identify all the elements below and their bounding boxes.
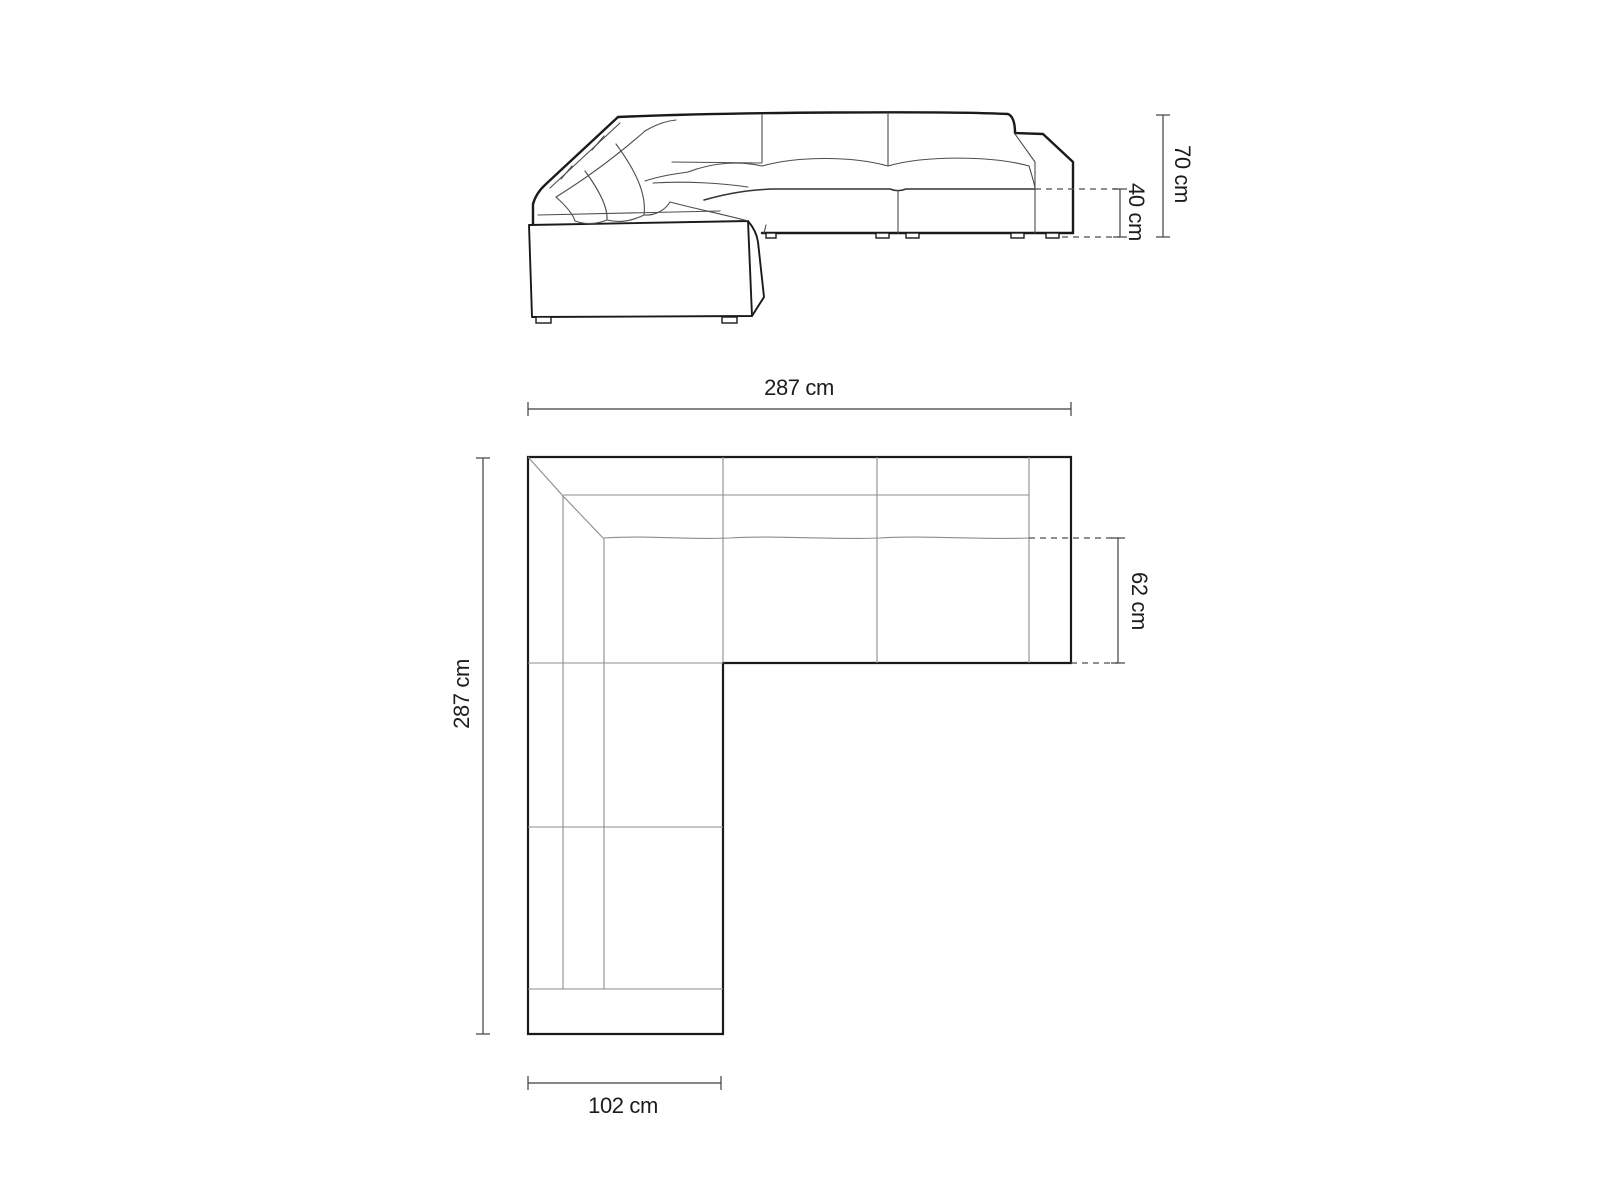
sofa-foot xyxy=(1046,233,1059,238)
sofa-foot xyxy=(1011,233,1024,238)
dimension-label-total-width: 287 cm xyxy=(719,375,879,401)
dimension-label-seat-height: 40 cm xyxy=(1123,132,1149,292)
dimension-label-seat-depth: 62 cm xyxy=(1126,521,1152,681)
sofa-foot xyxy=(536,317,551,323)
sofa-foot xyxy=(722,317,737,323)
sofa-elevation-drawing xyxy=(529,112,1073,323)
plan-dimension-annotations xyxy=(476,402,1125,1090)
sofa-foot xyxy=(906,233,919,238)
dimension-label-chaise-width: 102 cm xyxy=(543,1093,703,1119)
sofa-plan-drawing xyxy=(528,457,1071,1034)
sofa-line-art xyxy=(0,0,1600,1200)
elevation-dimension-annotations xyxy=(1035,115,1170,237)
sofa-foot xyxy=(766,233,776,238)
dimension-label-total-depth: 287 cm xyxy=(449,614,475,774)
diagram-canvas: 70 cm 40 cm 287 cm 287 cm 62 cm 102 cm xyxy=(0,0,1600,1200)
sofa-foot xyxy=(876,233,889,238)
dimension-label-total-height: 70 cm xyxy=(1169,94,1195,254)
